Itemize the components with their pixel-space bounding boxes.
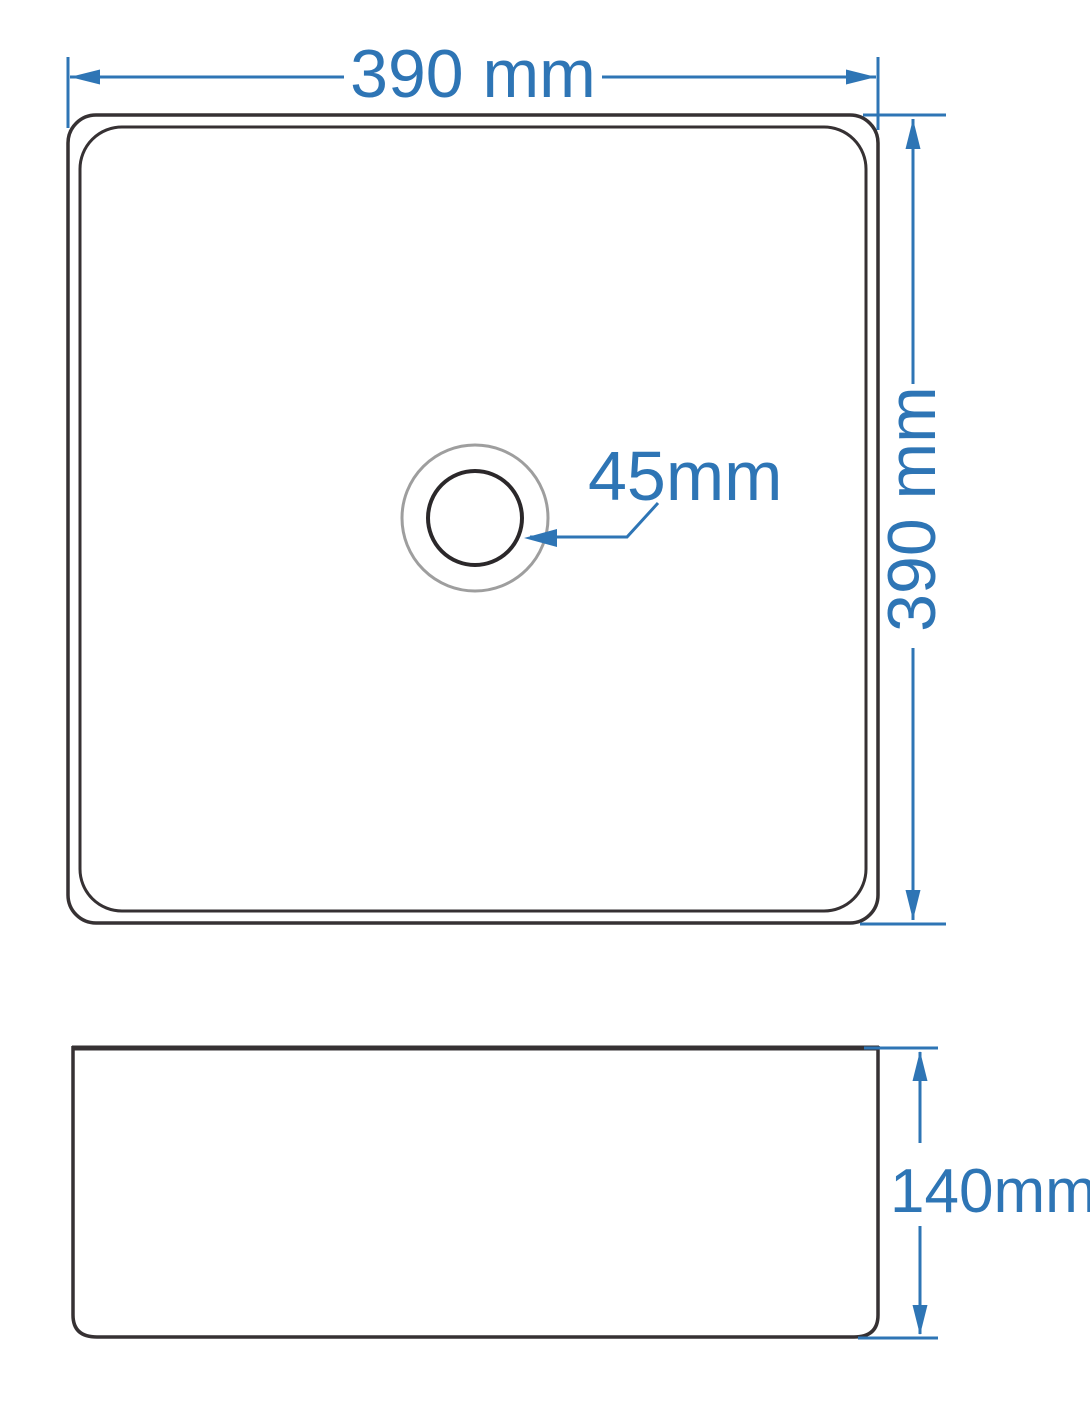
technical-drawing: 390 mm 390 mm 45mm — [0, 0, 1090, 1401]
drawing-canvas: 390 mm 390 mm 45mm — [0, 0, 1090, 1401]
arrowhead-right-icon — [846, 70, 876, 85]
side-view-body-outline — [73, 1046, 878, 1337]
depth-dimension: 140mm — [858, 1048, 1090, 1338]
width-dimension-label: 390 mm — [350, 36, 596, 112]
arrowhead-up-icon — [906, 119, 921, 149]
drain-outer-ring — [402, 445, 548, 591]
drain-dimension-label: 45mm — [588, 437, 782, 515]
arrowhead-down-icon — [906, 890, 921, 920]
height-dimension-label: 390 mm — [874, 386, 950, 632]
basin-outer-rim — [68, 115, 878, 923]
arrowhead-up-icon — [913, 1051, 928, 1081]
arrowhead-down-icon — [913, 1305, 928, 1335]
depth-dimension-label: 140mm — [890, 1157, 1090, 1226]
basin-inner-rim — [80, 127, 866, 911]
leader-arrowhead-icon — [524, 529, 557, 547]
height-dimension: 390 mm — [860, 115, 950, 924]
side-view — [72, 1046, 879, 1337]
drain-hole — [428, 471, 522, 565]
arrowhead-left-icon — [70, 70, 100, 85]
drain-callout: 45mm — [524, 437, 782, 547]
top-view — [68, 115, 878, 923]
